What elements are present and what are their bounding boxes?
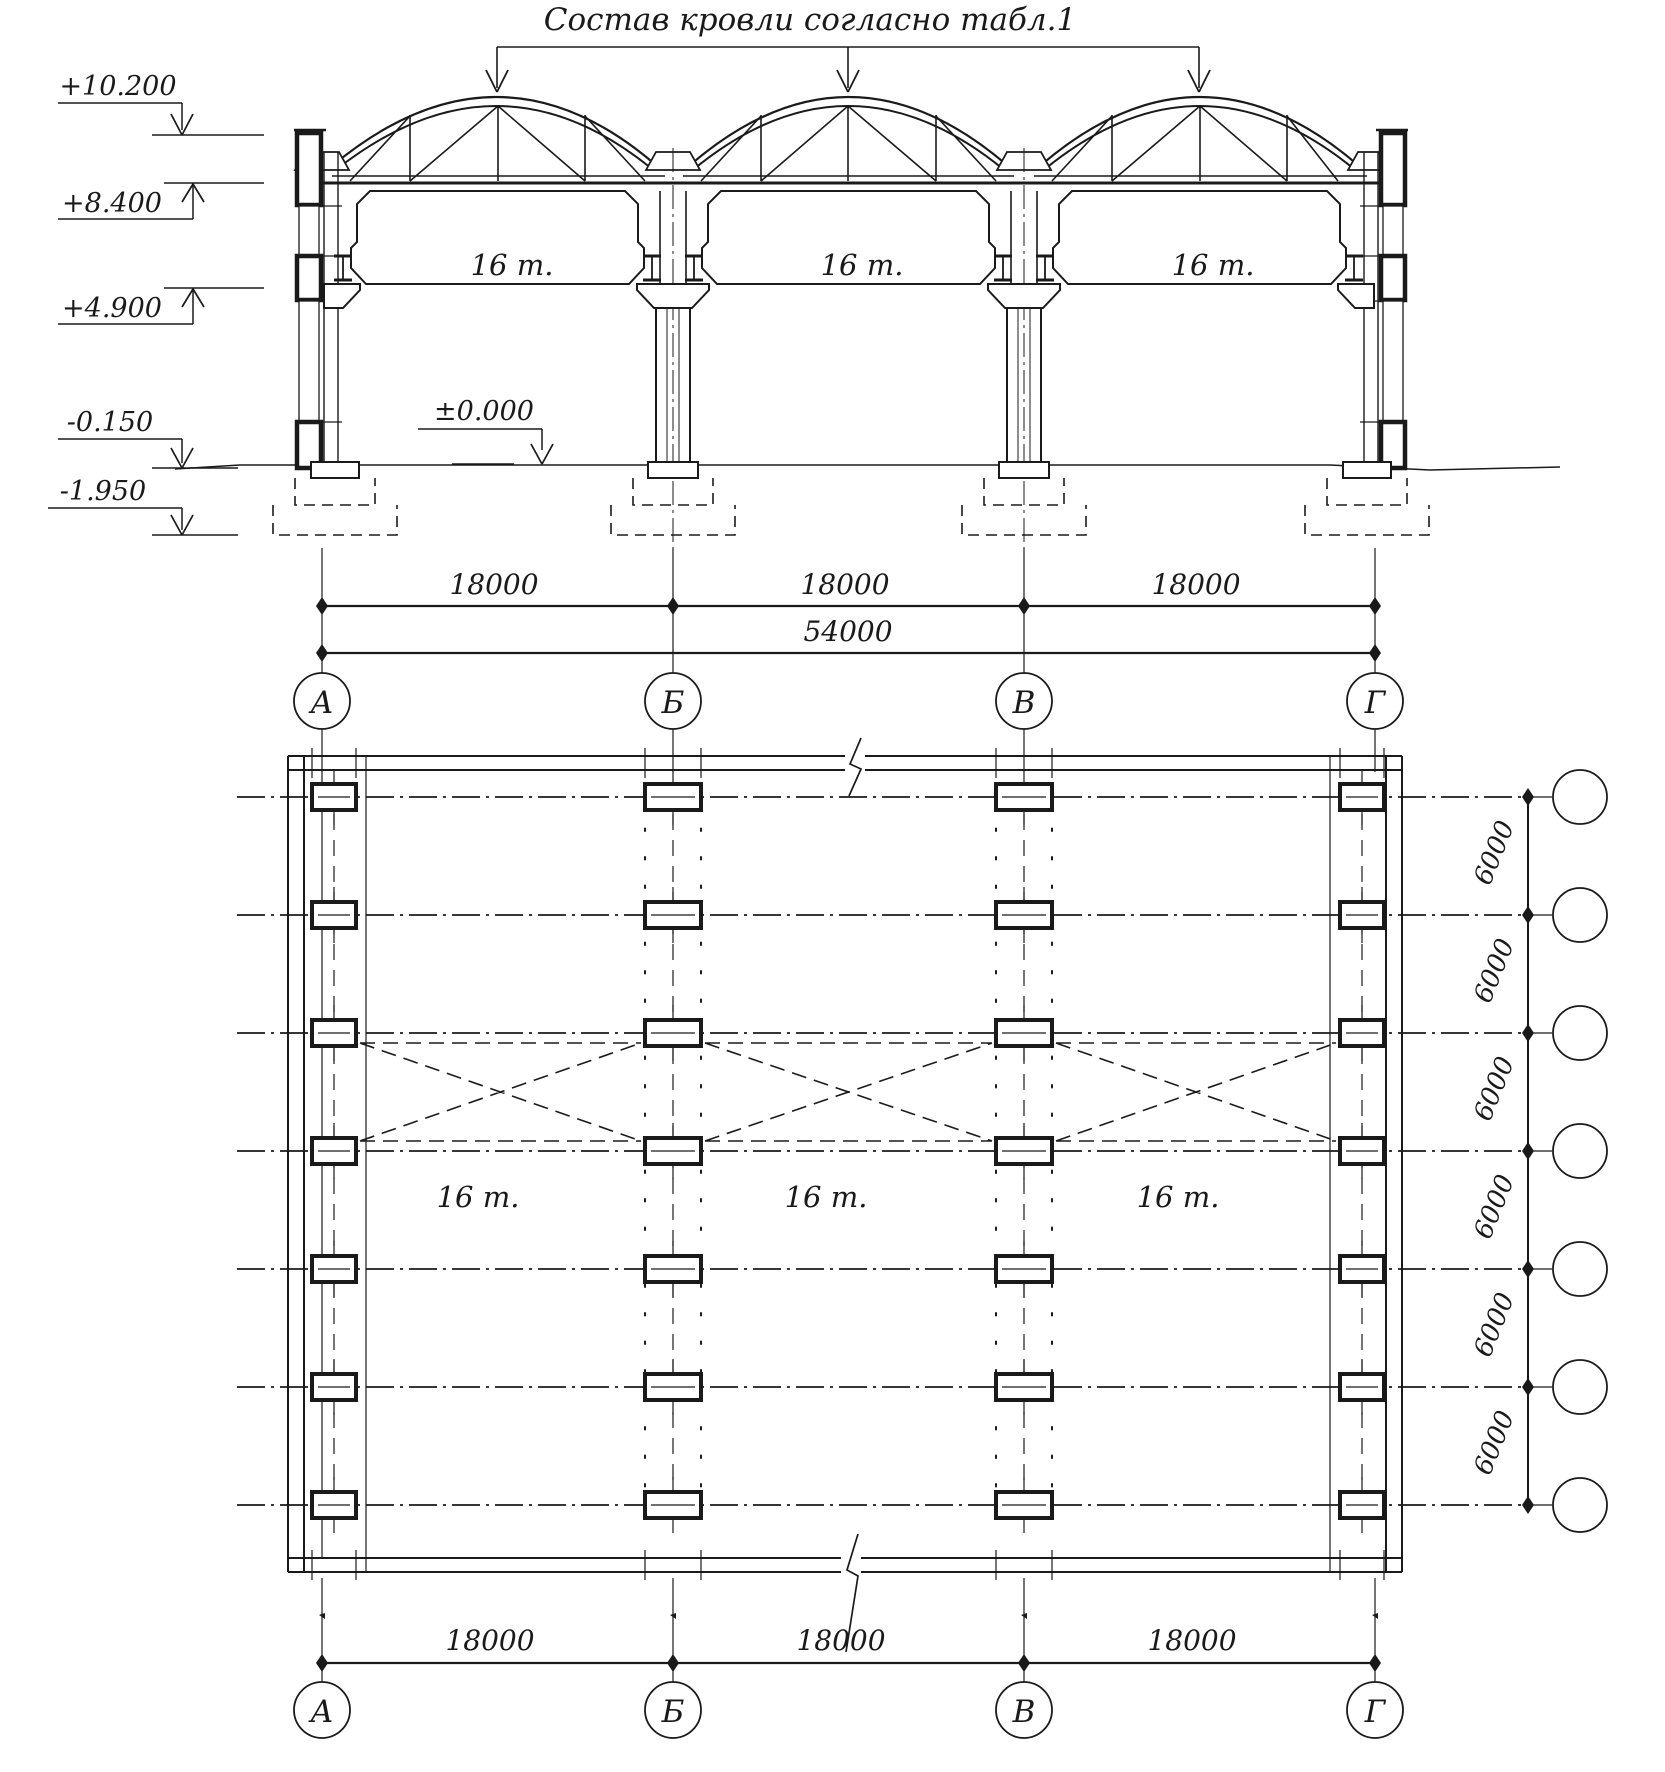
roof-note: Состав кровли согласно табл.1 bbox=[486, 2, 1210, 92]
truss-top-chord-inner bbox=[337, 106, 1354, 169]
plan-crane-bracing bbox=[360, 1043, 1336, 1141]
foundation-upper-tiers bbox=[295, 478, 1407, 505]
elevation-leader bbox=[58, 103, 264, 135]
row-dim-label: 6000 bbox=[1468, 1171, 1521, 1244]
dim-marker bbox=[1522, 1024, 1534, 1042]
wall-panel bbox=[1381, 133, 1405, 205]
dim-marker bbox=[1369, 644, 1381, 662]
axis-letter: В bbox=[1012, 685, 1036, 721]
row-dim-label: 6000 bbox=[1468, 1053, 1521, 1126]
extension-lines bbox=[322, 548, 1375, 668]
row-bubble bbox=[1553, 1478, 1607, 1532]
zero-level-leader bbox=[418, 429, 542, 464]
elevation-mark: -1.950 bbox=[48, 476, 238, 535]
crane-capacity-label: 16 т. bbox=[1172, 248, 1255, 282]
elevation-mark: +4.900 bbox=[58, 288, 264, 324]
axis-letter: Б bbox=[661, 1694, 685, 1730]
axis-letter: Г bbox=[1364, 685, 1387, 721]
drawing-title: Состав кровли согласно табл.1 bbox=[544, 2, 1076, 38]
column-center-lines bbox=[673, 148, 1024, 548]
elevation-mark: +8.400 bbox=[58, 183, 264, 219]
section-dimensions: 18000 18000 18000 54000 bbox=[316, 548, 1381, 668]
column-inner-lines bbox=[667, 308, 1030, 462]
truss-web-members bbox=[350, 105, 1338, 181]
axis-connectors bbox=[322, 1672, 1375, 1682]
axis-letter: Г bbox=[1364, 1694, 1387, 1730]
dim-marker bbox=[316, 644, 328, 662]
total-dim-label: 54000 bbox=[803, 615, 892, 648]
span-dim-label: 18000 bbox=[449, 568, 538, 601]
row-bubble bbox=[1553, 770, 1607, 824]
break-symbol-top bbox=[845, 738, 865, 796]
wall-glazing bbox=[1383, 206, 1403, 255]
elevation-mark: +10.200 bbox=[58, 71, 264, 135]
row-dim-label: 6000 bbox=[1468, 1407, 1521, 1480]
row-bubble bbox=[1553, 1360, 1607, 1414]
drawing-sheet: Состав кровли согласно табл.1 16 т. 16 т… bbox=[0, 0, 1665, 1772]
roof-note-bracket bbox=[497, 47, 1199, 88]
zero-level-label: ±0.000 bbox=[434, 396, 534, 427]
wall-glazing bbox=[299, 301, 319, 421]
dim-marker bbox=[1522, 1496, 1534, 1514]
span-dim-label: 18000 bbox=[796, 1624, 885, 1657]
crane-capacity-label: 16 т. bbox=[437, 1180, 520, 1214]
elevation-label: +8.400 bbox=[62, 188, 162, 219]
span-dim-label: 18000 bbox=[1151, 568, 1240, 601]
wall-pedestal bbox=[1343, 462, 1391, 478]
dim-marker bbox=[1522, 1378, 1534, 1396]
wall-panel bbox=[297, 256, 321, 300]
dim-marker bbox=[316, 597, 328, 615]
interior-columns bbox=[637, 148, 1060, 548]
roof-trusses bbox=[295, 97, 1402, 181]
span-dim-label: 18000 bbox=[445, 1624, 534, 1657]
row-dim-label: 6000 bbox=[1468, 1289, 1521, 1362]
plan-flange-dotted-lines bbox=[645, 800, 1052, 1505]
row-bubble bbox=[1553, 888, 1607, 942]
dim-marker bbox=[1369, 1654, 1381, 1672]
elevation-label: -1.950 bbox=[60, 476, 146, 507]
dim-marker bbox=[1522, 906, 1534, 924]
elevation-label: +4.900 bbox=[62, 293, 162, 324]
dim-marker bbox=[667, 597, 679, 615]
zero-level-mark: ±0.000 bbox=[418, 396, 553, 464]
axis-letter: А bbox=[308, 1694, 333, 1730]
crane-bridges: 16 т. 16 т. 16 т. bbox=[351, 191, 1346, 284]
column-corbels bbox=[637, 284, 1060, 308]
span-dim-label: 18000 bbox=[800, 568, 889, 601]
row-bubble bbox=[1553, 1006, 1607, 1060]
dim-marker bbox=[1018, 597, 1030, 615]
crane-capacity-label: 16 т. bbox=[1137, 1180, 1220, 1214]
wall-corbel bbox=[1338, 284, 1374, 308]
plan-row-center-lines bbox=[237, 797, 1528, 1505]
elevation-leader bbox=[48, 508, 238, 535]
plan-view: 16 т. 16 т. 16 т. 6000 6000 6000 6000 6 bbox=[237, 738, 1607, 1738]
crane-capacity-label: 16 т. bbox=[821, 248, 904, 282]
row-bubble bbox=[1553, 1242, 1607, 1296]
foundations bbox=[273, 478, 1429, 535]
dim-marker bbox=[316, 1654, 328, 1672]
column-pedestal bbox=[999, 462, 1049, 478]
dim-marker bbox=[1522, 1142, 1534, 1160]
dim-marker bbox=[1522, 788, 1534, 806]
column-pedestal bbox=[648, 462, 698, 478]
dim-marker bbox=[667, 1654, 679, 1672]
structural-drawing: Состав кровли согласно табл.1 16 т. 16 т… bbox=[0, 0, 1665, 1772]
plan-inner-face-lines bbox=[366, 756, 1330, 1572]
elevation-label: -0.150 bbox=[67, 407, 153, 438]
wall-glazing bbox=[1383, 301, 1403, 421]
wall-pedestal bbox=[311, 462, 359, 478]
elevation-leader bbox=[58, 439, 238, 468]
elevation-mark: -0.150 bbox=[58, 407, 238, 468]
plan-boundary-ticks bbox=[312, 748, 1384, 1580]
crane-capacity-label: 16 т. bbox=[471, 248, 554, 282]
row-bubble bbox=[1553, 1124, 1607, 1178]
column-lower-shafts bbox=[656, 308, 1041, 462]
row-dim-label: 6000 bbox=[1468, 935, 1521, 1008]
wall-panel bbox=[1381, 256, 1405, 300]
section-view: Состав кровли согласно табл.1 16 т. 16 т… bbox=[48, 2, 1560, 772]
plan-boundary bbox=[288, 756, 1402, 1572]
dim-marker bbox=[1522, 1260, 1534, 1278]
dim-marker bbox=[1018, 1654, 1030, 1672]
row-dim-label: 6000 bbox=[1468, 817, 1521, 890]
crane-capacity-label: 16 т. bbox=[785, 1180, 868, 1214]
axis-letter: В bbox=[1012, 1694, 1036, 1730]
wall-panel bbox=[297, 133, 321, 205]
axis-letter: Б bbox=[661, 685, 685, 721]
plan-span-dimension: 18000 18000 18000 А Б В Г bbox=[294, 1578, 1403, 1738]
wall-corbel bbox=[324, 284, 360, 308]
foundation-lower-slabs bbox=[273, 505, 1429, 535]
span-dim-label: 18000 bbox=[1147, 1624, 1236, 1657]
dim-marker bbox=[1369, 597, 1381, 615]
wall-glazing bbox=[299, 206, 319, 255]
elevation-label: +10.200 bbox=[59, 71, 176, 102]
axis-letter: А bbox=[308, 685, 333, 721]
